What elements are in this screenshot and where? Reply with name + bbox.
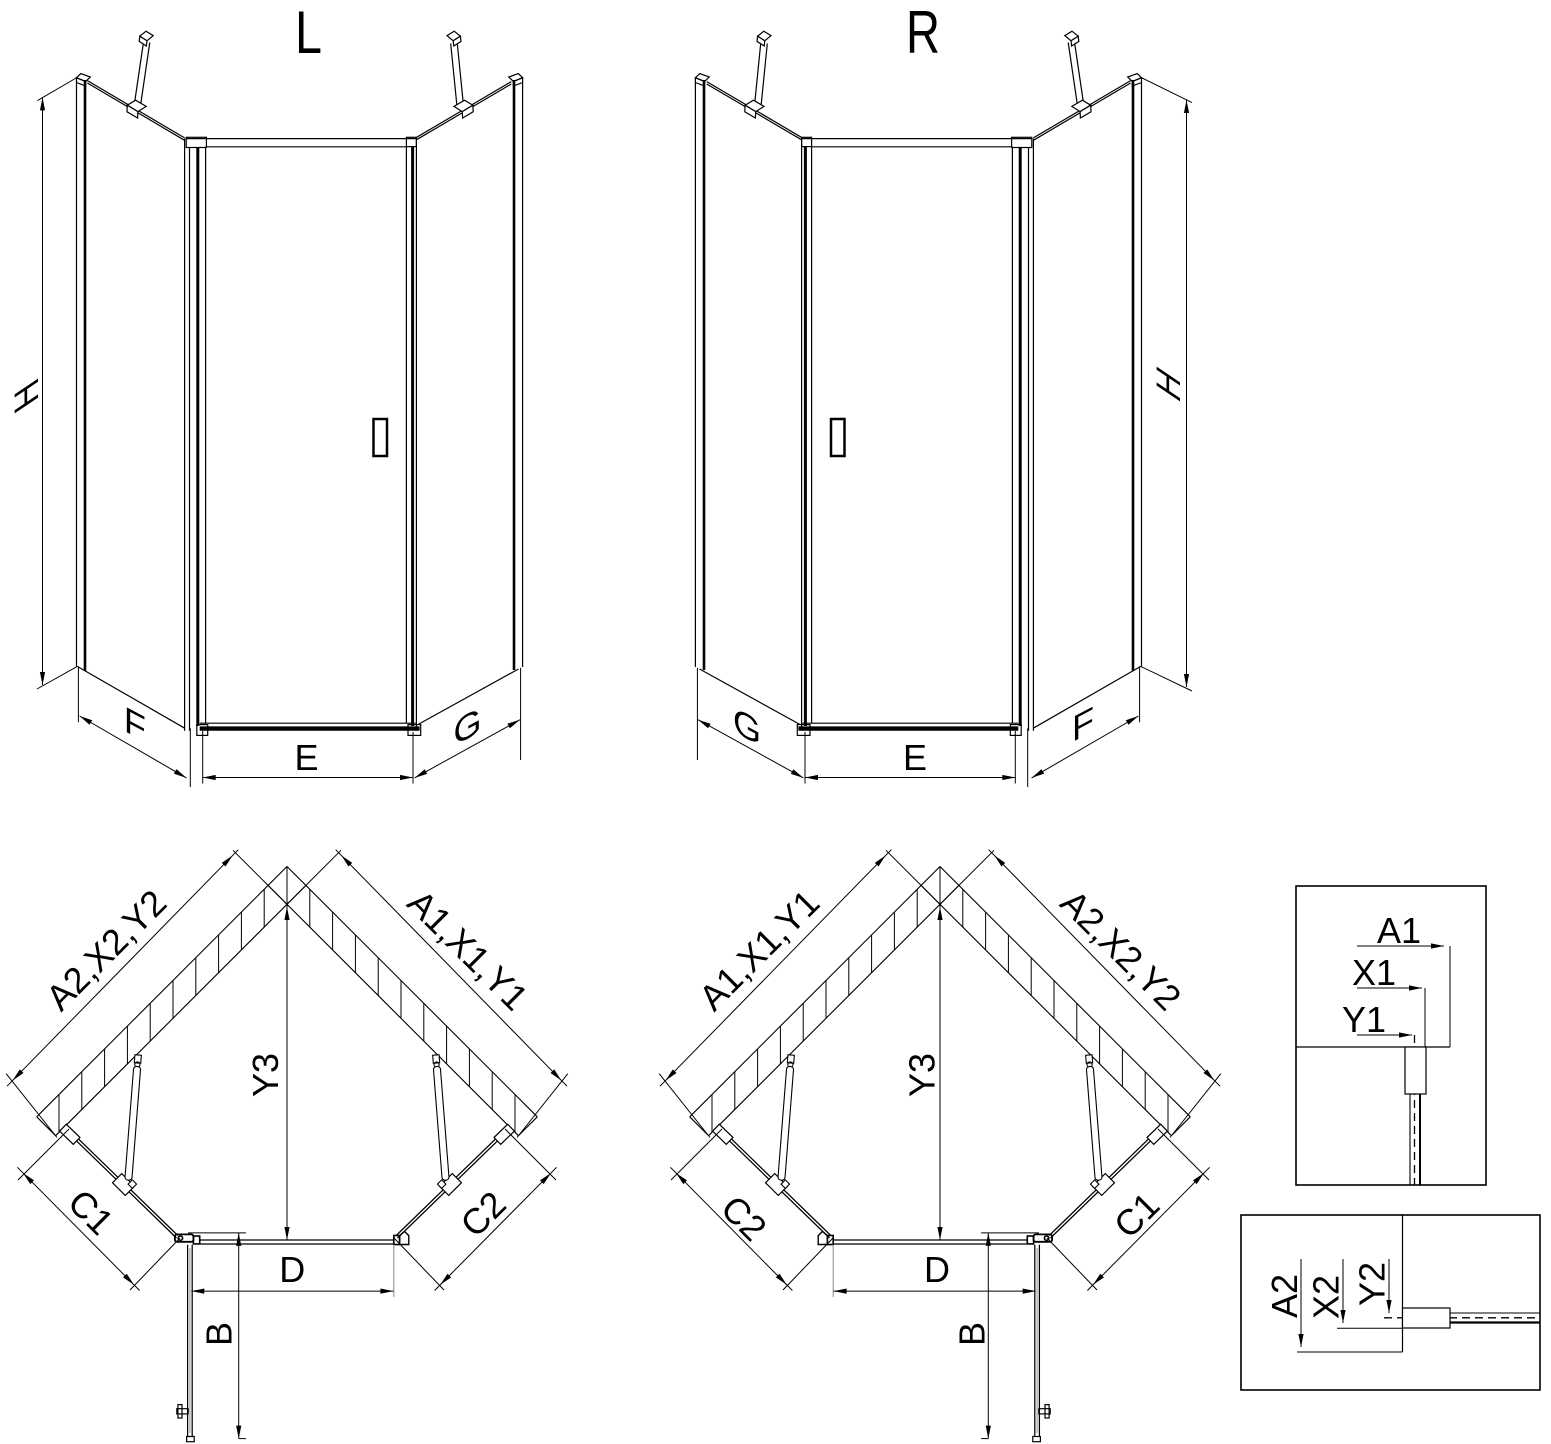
svg-text:B: B <box>199 1322 240 1346</box>
svg-text:L: L <box>295 0 322 66</box>
svg-text:A1: A1 <box>1377 910 1421 951</box>
svg-text:B: B <box>952 1322 993 1346</box>
svg-text:Y3: Y3 <box>245 1053 286 1097</box>
svg-text:Y2: Y2 <box>1352 1262 1393 1306</box>
svg-text:Y1: Y1 <box>1342 999 1386 1040</box>
svg-text:A2: A2 <box>1264 1274 1305 1318</box>
svg-text:Y3: Y3 <box>902 1053 943 1097</box>
svg-text:R: R <box>906 0 940 66</box>
svg-text:X2: X2 <box>1306 1275 1347 1319</box>
svg-text:D: D <box>924 1249 950 1290</box>
svg-text:E: E <box>903 737 927 778</box>
svg-text:D: D <box>279 1249 305 1290</box>
svg-text:X1: X1 <box>1352 952 1396 993</box>
svg-text:E: E <box>294 737 318 778</box>
